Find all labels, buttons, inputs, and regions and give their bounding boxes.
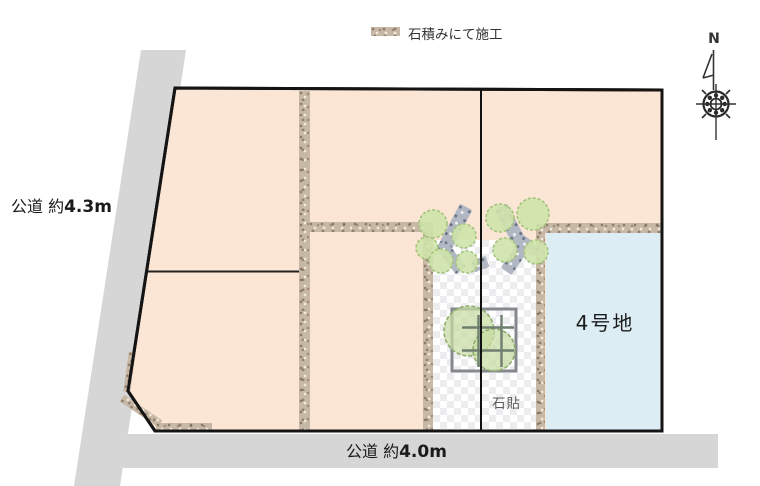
bottom-road-label: 公道 約4.0m [346,438,447,462]
left-road-label-prefix: 公道 約 [11,197,64,216]
left-road-label: 公道 約4.3m [11,193,112,217]
compass-north-label: N [702,31,726,47]
compass-icon [690,48,745,148]
bottom-road-label-prefix: 公道 約 [346,442,399,461]
legend-stone-swatch [371,27,400,36]
bottom-road-label-value: 4.0m [399,442,447,462]
boundary-lines-layer [0,0,760,486]
stone-paving-label: 石貼 [492,392,521,412]
site-plan-canvas: 石積みにて施工 公道 約4.3m 公道 約4.0m 4号地 石貼 N [0,0,760,486]
site-outline [128,88,662,431]
legend-label: 石積みにて施工 [408,23,503,43]
left-road-label-value: 4.3m [64,197,112,217]
lot4-label: 4号地 [560,307,650,336]
